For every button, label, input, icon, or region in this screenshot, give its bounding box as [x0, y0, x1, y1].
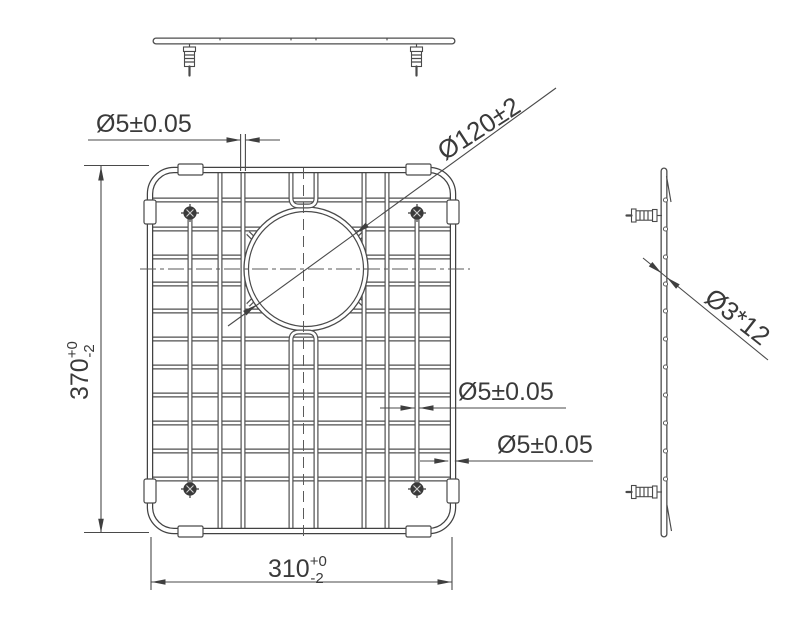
dimension-rim-diameter: Ø5±0.05: [420, 431, 593, 464]
dimension-height: 370+0-2: [64, 166, 149, 534]
side-view-foot-bottom: [627, 486, 663, 499]
dim-height-minus: -2: [81, 344, 98, 357]
front-view: [140, 164, 470, 537]
dim-height-value: 370: [66, 358, 94, 400]
side-view-foot-top: [627, 209, 663, 222]
dimension-wire-diameter-top: Ø5±0.05: [88, 110, 280, 171]
screw-foot: [181, 480, 199, 498]
dim-width-label: 310+0-2: [268, 553, 327, 587]
side-view: [627, 171, 672, 534]
dim-height-label: 370+0-2: [64, 341, 98, 400]
dimension-width: 310+0-2: [151, 537, 452, 590]
dim-rim-diameter-label: Ø5±0.05: [497, 431, 593, 459]
screw-foot: [181, 204, 199, 222]
dim-height-plus: +0: [64, 341, 81, 358]
screw-foot: [408, 204, 426, 222]
dim-wire-diameter-mid-label: Ø5±0.05: [458, 378, 554, 406]
technical-drawing-sink-grid: Ø5±0.05 Ø120±2 370+0-2 310+0-2 Ø5±0.05 Ø…: [0, 0, 800, 642]
dim-hole-diameter-label: Ø120±2: [432, 91, 526, 166]
top-view: [156, 38, 452, 76]
dimension-hole-diameter: Ø120±2: [228, 88, 556, 326]
dim-width-plus: +0: [310, 553, 327, 570]
dim-wire-diameter-top-label: Ø5±0.05: [96, 110, 192, 138]
dim-width-value: 310: [268, 555, 310, 583]
top-view-foot-left: [184, 45, 196, 76]
top-view-foot-right: [411, 45, 423, 76]
dim-width-minus: -2: [310, 570, 323, 587]
screw-foot: [408, 480, 426, 498]
dim-foot-pin-label: Ø3*12: [699, 282, 776, 351]
